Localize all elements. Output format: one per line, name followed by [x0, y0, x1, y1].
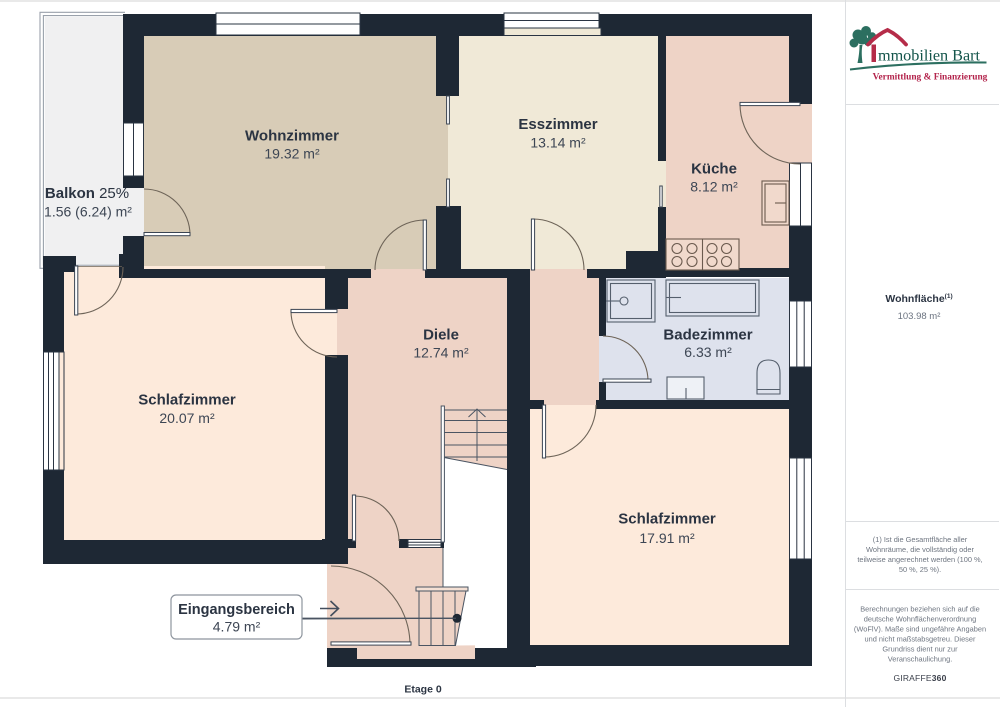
svg-text:Etage 0: Etage 0 [404, 684, 442, 696]
svg-text:19.32 m²: 19.32 m² [264, 146, 320, 162]
svg-text:6.33 m²: 6.33 m² [684, 344, 732, 360]
svg-text:17.91 m²: 17.91 m² [639, 530, 695, 546]
svg-text:50 %, 25 %).: 50 %, 25 %). [899, 565, 941, 574]
svg-text:Wohnzimmer: Wohnzimmer [245, 128, 339, 145]
svg-text:Schlafzimmer: Schlafzimmer [138, 392, 236, 409]
svg-text:Badezimmer: Badezimmer [663, 327, 752, 344]
svg-text:(1) Ist die Gesamtfläche aller: (1) Ist die Gesamtfläche aller [873, 535, 968, 544]
svg-text:Berechnungen beziehen sich auf: Berechnungen beziehen sich auf die [860, 605, 980, 614]
svg-text:Esszimmer: Esszimmer [518, 116, 597, 133]
svg-text:Grundriss dient nur zur: Grundriss dient nur zur [882, 645, 958, 654]
svg-text:Balkon 25%: Balkon 25% [45, 185, 129, 202]
svg-text:deutsche Wohnflächenverordnung: deutsche Wohnflächenverordnung [864, 615, 976, 624]
svg-text:103.98 m²: 103.98 m² [898, 311, 941, 322]
svg-text:und nicht maßstabsgetreu. Dies: und nicht maßstabsgetreu. Dieser [865, 635, 976, 644]
svg-text:13.14 m²: 13.14 m² [530, 135, 586, 151]
svg-text:teilweise angerechnet werden (: teilweise angerechnet werden (100 %, [857, 555, 982, 564]
svg-text:Eingangsbereich: Eingangsbereich [178, 602, 295, 618]
svg-text:(WoFlV). Maße sind ungefähre A: (WoFlV). Maße sind ungefähre Angaben [854, 625, 986, 634]
svg-text:Veranschaulichung.: Veranschaulichung. [888, 655, 953, 664]
svg-text:GIRAFFE360: GIRAFFE360 [893, 673, 946, 683]
svg-text:8.12 m²: 8.12 m² [690, 179, 738, 195]
svg-text:Diele: Diele [423, 327, 459, 344]
svg-text:Wohnfläche(1): Wohnfläche(1) [885, 293, 952, 305]
svg-text:1.56 (6.24) m²: 1.56 (6.24) m² [44, 204, 132, 220]
svg-text:Schlafzimmer: Schlafzimmer [618, 511, 716, 528]
svg-text:Küche: Küche [691, 161, 737, 178]
svg-text:4.79 m²: 4.79 m² [213, 619, 261, 635]
svg-text:20.07 m²: 20.07 m² [159, 410, 215, 426]
svg-text:Wohnräume, die vollständig ode: Wohnräume, die vollständig oder [866, 545, 974, 554]
svg-text:12.74 m²: 12.74 m² [413, 345, 469, 361]
svg-text:Vermittlung & Finanzierung: Vermittlung & Finanzierung [873, 73, 988, 83]
